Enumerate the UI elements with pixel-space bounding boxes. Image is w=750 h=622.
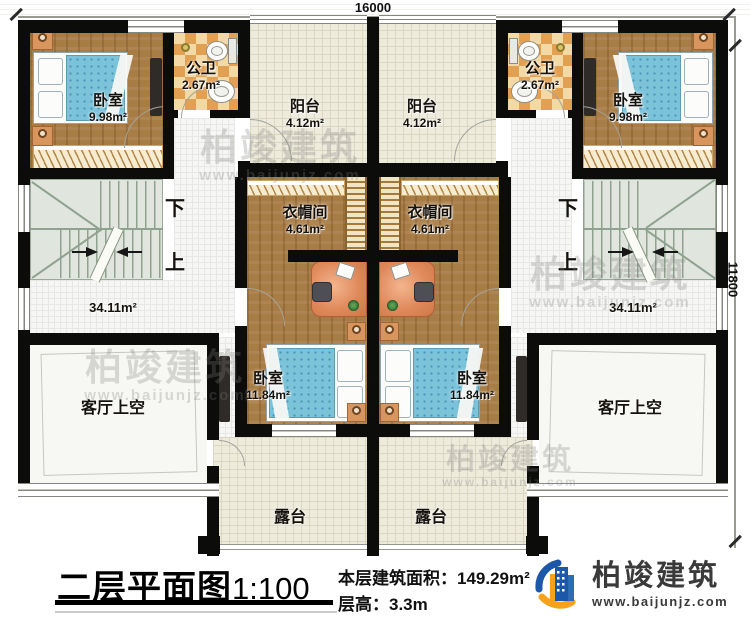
- room-label-balcony-left: 阳台4.12m²: [265, 98, 345, 130]
- cloak-rail: [247, 180, 345, 196]
- plant-icon: [348, 300, 359, 311]
- tv-icon: [516, 356, 527, 422]
- room-label-cloak-left: 衣帽间4.61m²: [260, 204, 350, 236]
- terrace-post: [526, 536, 548, 554]
- window: [18, 288, 30, 330]
- stair-down-label-left: 下: [165, 192, 185, 221]
- wall-segment: [163, 33, 174, 170]
- title-underline-thin: [55, 611, 337, 613]
- wall-segment: [379, 424, 410, 437]
- stair-up-label-right: 上: [558, 246, 578, 275]
- window-band: [18, 483, 219, 497]
- wall-segment: [238, 161, 250, 177]
- stair-arrow-tail: [128, 251, 142, 253]
- wall-segment: [716, 330, 728, 497]
- terrace-railing: [213, 544, 367, 550]
- stair-arrow-tail: [664, 251, 678, 253]
- hall-area-right: 34.11m²: [600, 300, 666, 315]
- dimension-top: 16000: [345, 0, 401, 15]
- wall-segment: [568, 110, 572, 118]
- wall-segment: [250, 163, 367, 177]
- chair: [414, 282, 434, 302]
- corridor-left: [174, 118, 235, 333]
- stair-arrow-icon: [86, 247, 98, 257]
- room-label-bedroom-top-left: 卧室9.98m²: [68, 92, 148, 124]
- stair-arrow-tail: [72, 251, 86, 253]
- terrace-post: [198, 536, 220, 554]
- wall-segment: [572, 33, 583, 170]
- room-label-bath-right: 公卫2.67m²: [510, 60, 570, 92]
- floorplan-canvas: 卧室9.98m² 卧室9.98m² 公卫2.67m² 公卫2.67m² 阳台4.…: [0, 0, 750, 622]
- room-label-bedroom-top-right: 卧室9.98m²: [588, 92, 668, 124]
- wall-segment: [527, 345, 539, 440]
- cloak-rail: [401, 180, 499, 196]
- terrace-railing: [379, 544, 533, 550]
- wall-segment: [496, 20, 562, 33]
- floor-area-text: 本层建筑面积：149.29m²: [338, 564, 530, 589]
- wall-segment: [18, 333, 219, 345]
- company-website: www.baijunjz.com: [592, 594, 728, 609]
- window: [716, 185, 728, 232]
- wall-segment: [18, 20, 30, 185]
- stair-arrow-icon: [116, 247, 128, 257]
- living-void-label-right: 客厅上空: [570, 394, 690, 418]
- room-label-cloak-right: 衣帽间4.61m²: [385, 204, 475, 236]
- wall-segment: [379, 250, 458, 262]
- balcony-railing: [379, 15, 496, 24]
- wall-segment: [18, 168, 174, 179]
- wall-segment: [527, 333, 728, 345]
- nightstand: [32, 30, 53, 50]
- faucet-icon: [556, 43, 565, 52]
- window: [562, 20, 618, 33]
- stair-steps-left-upper: [100, 181, 163, 228]
- room-label-bedroom-bottom-right: 卧室11.84m²: [432, 370, 512, 402]
- wall-segment: [18, 330, 30, 497]
- wall-segment: [18, 20, 128, 33]
- nightstand: [380, 403, 399, 422]
- toilet-icon: [518, 41, 540, 61]
- terrace-label-left: 露台: [250, 503, 330, 527]
- room-label-balcony-right: 阳台4.12m²: [382, 98, 462, 130]
- wall-segment: [235, 177, 247, 288]
- wall-segment: [288, 250, 367, 262]
- center-party-wall: [367, 17, 379, 556]
- wall-segment: [572, 168, 728, 179]
- window: [272, 424, 336, 437]
- wall-segment: [336, 424, 367, 437]
- wall-segment: [496, 161, 508, 177]
- wall-segment: [207, 345, 219, 440]
- faucet-icon: [181, 43, 190, 52]
- nightstand: [347, 322, 366, 341]
- title-underline: [55, 600, 333, 605]
- wall-segment: [499, 177, 511, 288]
- company-logo-icon: [534, 558, 586, 610]
- nightstand: [693, 30, 714, 50]
- hall-area-left: 34.11m²: [80, 300, 146, 315]
- wall-segment: [235, 424, 272, 437]
- nightstand: [32, 126, 53, 146]
- balcony-railing: [250, 15, 367, 24]
- wall-segment: [18, 232, 30, 288]
- stair-arrow-icon: [652, 247, 664, 257]
- nightstand: [347, 403, 366, 422]
- nightstand: [380, 322, 399, 341]
- nightstand: [693, 126, 714, 146]
- stair-arrow-icon: [622, 247, 634, 257]
- stair-steps-right-upper: [583, 181, 646, 228]
- wardrobe: [33, 145, 163, 170]
- window: [18, 185, 30, 232]
- wall-segment: [716, 20, 728, 185]
- dimension-right: 11800: [726, 253, 741, 307]
- stair-divider-right: [583, 228, 716, 230]
- chair: [312, 282, 332, 302]
- company-name: 柏竣建筑: [592, 562, 720, 591]
- stair-down-label-right: 下: [558, 192, 578, 221]
- living-void-label-left: 客厅上空: [53, 394, 173, 418]
- wall-segment: [496, 33, 508, 118]
- wall-segment: [379, 163, 496, 177]
- wall-segment: [238, 33, 250, 118]
- toilet-icon: [206, 41, 228, 61]
- wall-segment: [174, 110, 178, 118]
- stair-arrow-tail: [608, 251, 622, 253]
- window: [410, 424, 474, 437]
- window-band: [527, 483, 728, 497]
- corridor-right: [511, 118, 572, 333]
- window: [128, 20, 184, 33]
- terrace-label-right: 露台: [391, 503, 471, 527]
- stair-up-label-left: 上: [165, 246, 185, 275]
- room-label-bedroom-bottom-left: 卧室11.84m²: [228, 370, 308, 402]
- room-label-bath-left: 公卫2.67m²: [171, 60, 231, 92]
- wardrobe: [583, 145, 713, 170]
- wall-segment: [618, 20, 728, 33]
- floor-height-text: 层高：3.3m: [338, 590, 428, 615]
- wall-segment: [184, 20, 250, 33]
- wall-segment: [474, 424, 511, 437]
- plant-icon: [387, 300, 398, 311]
